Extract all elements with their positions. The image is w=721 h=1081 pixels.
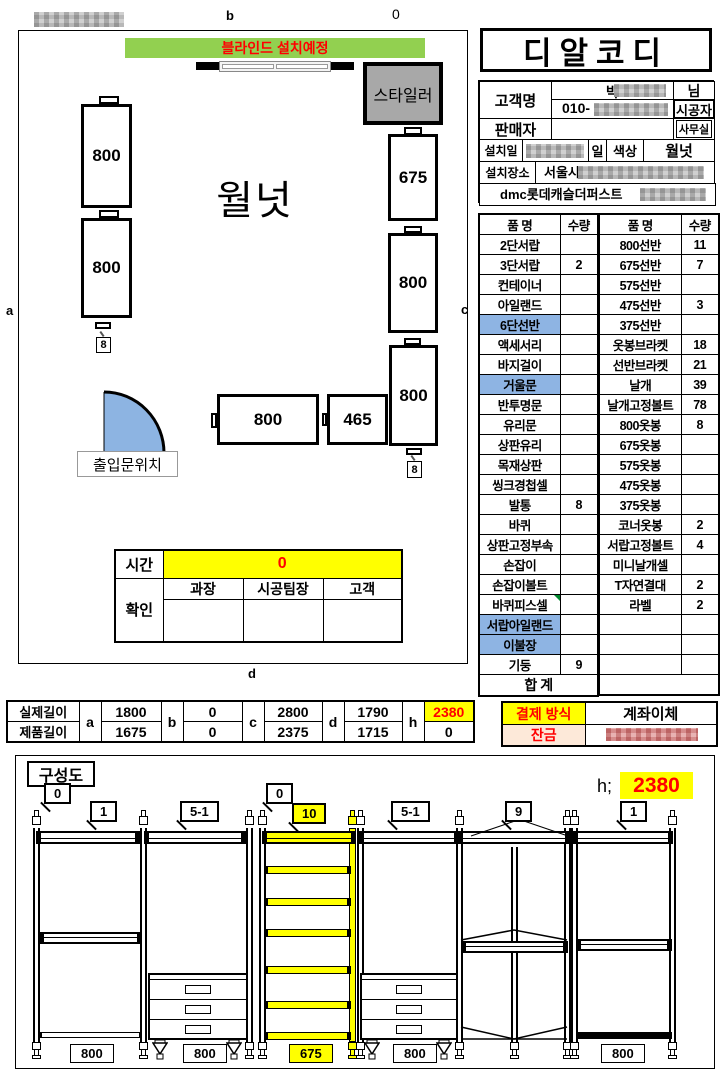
- frame-pole: [571, 828, 578, 1042]
- parts-name-header: 품 명: [479, 214, 560, 235]
- top-shelf: [144, 831, 246, 844]
- top-shelf: [36, 831, 140, 844]
- part-name: 375옷봉: [599, 495, 681, 515]
- length-d-actual: 1790: [344, 701, 402, 722]
- customer-suffix: 님: [673, 81, 715, 100]
- part-qty: [681, 615, 719, 635]
- time-label: 시간: [115, 550, 163, 578]
- hanging-rod: [576, 939, 672, 951]
- part-qty: [681, 655, 719, 675]
- top-shelf: [262, 831, 356, 844]
- parts-row: T자연결대 2: [599, 575, 719, 595]
- leveling-foot-top: [356, 816, 365, 825]
- part-name: 800옷봉: [599, 415, 681, 435]
- parts-row: 675옷봉: [599, 435, 719, 455]
- pole-count-marker-left: 8: [96, 337, 111, 353]
- parts-row: 미니날개셀: [599, 555, 719, 575]
- part-name: 575옷봉: [599, 455, 681, 475]
- parts-row: 유리문: [479, 415, 598, 435]
- top-shelf: [573, 831, 673, 844]
- parts-qty-header: 수량: [681, 214, 719, 235]
- unit-tab: [99, 96, 119, 104]
- leveling-foot-bottom: [245, 1055, 254, 1059]
- frame-pole: [669, 828, 676, 1042]
- site-detail: dmc롯데캐슬더퍼스트: [500, 187, 622, 202]
- length-d-product: 1715: [344, 722, 402, 743]
- part-qty: [560, 515, 598, 535]
- part-name: 목재상판: [479, 455, 560, 475]
- callout-5-1: 5-1: [180, 801, 219, 822]
- width-label-800: 800: [393, 1044, 437, 1063]
- length-key-a: a: [79, 701, 101, 742]
- part-qty: [560, 615, 598, 635]
- customer-info-table: 고객명 박 님 010- 시공자 판매자 사무실 설치일 일 색상 월넛 설치장…: [478, 80, 714, 203]
- leveling-foot-bottom: [510, 1055, 519, 1059]
- sign-cell: [323, 599, 402, 642]
- part-qty: [681, 275, 719, 295]
- height-value: 2380: [620, 772, 693, 799]
- parts-row: [599, 615, 719, 635]
- parts-row: 3단서랍 2: [479, 255, 598, 275]
- parts-row: 코너옷봉 2: [599, 515, 719, 535]
- drawer-handle: [185, 985, 211, 994]
- phone-prefix: 010-: [562, 100, 590, 116]
- drawer-handle: [185, 1025, 211, 1034]
- plan-unit-left-2: 800: [81, 218, 132, 318]
- parts-row: 거울문: [479, 375, 598, 395]
- leveling-foot-bottom: [668, 1055, 677, 1059]
- length-h-product: 0: [424, 722, 474, 743]
- plan-unit-right-1: 675: [388, 134, 438, 221]
- unit-tab: [404, 226, 422, 233]
- site-city: 서울시: [544, 165, 580, 180]
- parts-row: 옷봉브라켓 18: [599, 335, 719, 355]
- unit-tab: [404, 338, 421, 345]
- time-confirm-table: 시간 0 확인 과장 시공팀장 고객: [114, 549, 403, 643]
- part-name: 씽크경첩셀: [479, 475, 560, 495]
- signer-manager: 과장: [163, 578, 243, 599]
- payment-table: 결제 방식 계좌이체 잔금: [501, 701, 718, 747]
- parts-row: 발통 8: [479, 495, 598, 515]
- customer-phone: 010-: [551, 99, 674, 119]
- parts-row: 바퀴피스셀: [479, 595, 598, 615]
- parts-row: 씽크경첩셀: [479, 475, 598, 495]
- part-name: 발통: [479, 495, 560, 515]
- parts-table-right: 품 명 수량 800선반 11 675선반 7 575선반: [598, 213, 720, 696]
- parts-qty-header: 수량: [560, 214, 598, 235]
- parts-row: 바퀴: [479, 515, 598, 535]
- date-suffix: 일: [588, 139, 607, 162]
- part-name: 상판유리: [479, 435, 560, 455]
- callout-5-1: 5-1: [391, 801, 430, 822]
- hanging-rod: [39, 932, 142, 944]
- part-name: 375선반: [599, 315, 681, 335]
- part-name: 유리문: [479, 415, 560, 435]
- part-qty: 2: [681, 595, 719, 615]
- parts-row: 675선반 7: [599, 255, 719, 275]
- callout-0: 0: [44, 783, 71, 804]
- plan-unit-right-3: 800: [389, 345, 438, 446]
- part-name: 미니날개셀: [599, 555, 681, 575]
- leveling-foot-top: [139, 816, 148, 825]
- callout-9: 9: [505, 801, 532, 822]
- length-key-b: b: [161, 701, 183, 742]
- leveling-foot-bottom: [258, 1055, 267, 1059]
- part-name: 손잡이볼트: [479, 575, 560, 595]
- window-pane: [276, 64, 328, 69]
- parts-row: 375선반: [599, 315, 719, 335]
- length-c-actual: 2800: [264, 701, 322, 722]
- install-date-label: 설치일: [479, 139, 523, 162]
- part-name: 날개: [599, 375, 681, 395]
- parts-row: 아일랜드: [479, 295, 598, 315]
- site-detail-redacted: [640, 188, 706, 201]
- company-title: 디알코디: [480, 28, 712, 72]
- part-qty: [560, 455, 598, 475]
- part-name: 상판고정부속: [479, 535, 560, 555]
- customer-name-redacted: [614, 84, 666, 97]
- part-qty: [681, 455, 719, 475]
- part-qty: [560, 415, 598, 435]
- callout-10: 10: [292, 803, 326, 824]
- leveling-foot-top: [258, 816, 267, 825]
- parts-row: 475옷봉: [599, 475, 719, 495]
- part-name: 바퀴피스셀: [479, 595, 560, 615]
- part-qty: 21: [681, 355, 719, 375]
- parts-total-label: 합 계: [479, 675, 598, 697]
- parts-row: 575선반: [599, 275, 719, 295]
- parts-row: 6단선반: [479, 315, 598, 335]
- yellow-shelf: [264, 929, 351, 937]
- corner-shelf-bottom: [458, 1026, 570, 1042]
- drawer: [362, 1020, 456, 1039]
- corner-shelf-top: [458, 926, 570, 944]
- edge-label-a: a: [6, 303, 13, 318]
- part-qty: [560, 435, 598, 455]
- part-qty: [681, 315, 719, 335]
- part-name: 575선반: [599, 275, 681, 295]
- lengths-table: 실제길이 a 1800 b 0 c 2800 d 1790 h 2380 제품길…: [6, 700, 475, 743]
- part-name: 475선반: [599, 295, 681, 315]
- site-redacted: [578, 166, 704, 179]
- part-name: 컨테이너: [479, 275, 560, 295]
- parts-row: [599, 655, 719, 675]
- part-qty: 8: [681, 415, 719, 435]
- part-name: [599, 655, 681, 675]
- part-qty: 2: [560, 255, 598, 275]
- part-name: 이불장: [479, 635, 560, 655]
- part-name: 바퀴: [479, 515, 560, 535]
- part-name: 기둥: [479, 655, 560, 675]
- edge-label-b-value: 0: [392, 6, 400, 22]
- parts-row: 손잡이볼트: [479, 575, 598, 595]
- redacted-top-note: [34, 12, 124, 27]
- parts-row: 800옷봉 8: [599, 415, 719, 435]
- part-name: 6단선반: [479, 315, 560, 335]
- part-qty: 3: [681, 295, 719, 315]
- edge-label-c: c: [461, 302, 468, 317]
- width-label-800: 800: [70, 1044, 114, 1063]
- callout-1: 1: [90, 801, 117, 822]
- date-redacted: [526, 144, 584, 158]
- leveling-foot-bottom: [32, 1055, 41, 1059]
- parts-row: 상판고정부속: [479, 535, 598, 555]
- office-wrap: 사무실: [673, 118, 715, 140]
- part-qty: [681, 435, 719, 455]
- part-name: 3단서랍: [479, 255, 560, 275]
- plan-unit-mid-1: 800: [217, 394, 319, 445]
- customer-name: 박: [551, 81, 674, 100]
- width-label-800: 800: [601, 1044, 645, 1063]
- drawer-handle: [185, 1005, 211, 1014]
- triangle-foot: [152, 1040, 168, 1060]
- parts-row: 선반브라켓 21: [599, 355, 719, 375]
- seller-label: 판매자: [479, 118, 552, 140]
- part-name: 옷봉브라켓: [599, 335, 681, 355]
- window-pane: [222, 64, 274, 69]
- three-drawer-unit: [148, 973, 248, 1040]
- unit-tab: [406, 448, 422, 455]
- part-qty: [560, 635, 598, 655]
- seller-value: [551, 118, 674, 140]
- part-qty: [560, 315, 598, 335]
- phone-redacted: [594, 103, 668, 116]
- leveling-foot-top: [668, 816, 677, 825]
- part-name: 액세서리: [479, 335, 560, 355]
- drawer: [150, 1020, 246, 1039]
- part-name: 손잡이: [479, 555, 560, 575]
- length-b-actual: 0: [183, 701, 242, 722]
- triangle-foot: [226, 1040, 242, 1060]
- part-name: 바지걸이: [479, 355, 560, 375]
- part-name: [599, 615, 681, 635]
- part-qty: 18: [681, 335, 719, 355]
- part-qty: 8: [560, 495, 598, 515]
- balance-redacted: [606, 728, 698, 741]
- length-c-product: 2375: [264, 722, 322, 743]
- parts-row: 서랍고정볼트 4: [599, 535, 719, 555]
- part-qty: 9: [560, 655, 598, 675]
- three-drawer-unit: [360, 973, 458, 1040]
- edge-label-b: b: [226, 8, 234, 23]
- drawer-handle: [396, 1005, 422, 1014]
- site-label: 설치장소: [479, 161, 536, 184]
- part-name: T자연결대: [599, 575, 681, 595]
- edge-label-d: d: [248, 666, 256, 681]
- parts-row: 서랍아일랜드: [479, 615, 598, 635]
- customer-label: 고객명: [479, 81, 552, 119]
- parts-row: 반투명문: [479, 395, 598, 415]
- window-wall-left: [196, 62, 219, 70]
- unit-tab: [99, 210, 119, 218]
- part-name: [599, 635, 681, 655]
- parts-row: 이불장: [479, 635, 598, 655]
- yellow-shelf: [264, 966, 351, 974]
- plan-unit-right-2: 800: [388, 233, 438, 333]
- part-qty: [560, 575, 598, 595]
- blind-banner: 블라인드 설치예정: [125, 38, 425, 58]
- part-qty: [560, 335, 598, 355]
- unit-tab: [95, 322, 111, 329]
- drawer: [362, 980, 456, 1000]
- length-a-product: 1675: [101, 722, 161, 743]
- payment-method-value: 계좌이체: [585, 702, 717, 725]
- yellow-shelf: [264, 1001, 351, 1009]
- width-label-675: 675: [289, 1044, 333, 1063]
- bottom-shelf: [39, 1032, 142, 1038]
- site-value: 서울시: [535, 161, 715, 184]
- signer-team-lead: 시공팀장: [243, 578, 323, 599]
- part-name: 선반브라켓: [599, 355, 681, 375]
- confirm-label: 확인: [115, 578, 163, 642]
- part-name: 475옷봉: [599, 475, 681, 495]
- part-name: 거울문: [479, 375, 560, 395]
- time-value: 0: [163, 550, 402, 578]
- parts-row: 800선반 11: [599, 235, 719, 255]
- leveling-foot-bottom: [570, 1055, 579, 1059]
- leveling-foot-top: [32, 816, 41, 825]
- order-sheet: b 0 a c d 블라인드 설치예정 스타일러 800 800 8 월넛 67…: [0, 0, 721, 1081]
- part-qty: [681, 555, 719, 575]
- parts-row: 컨테이너: [479, 275, 598, 295]
- part-qty: [681, 475, 719, 495]
- part-qty: [560, 295, 598, 315]
- callout-1: 1: [620, 801, 647, 822]
- leveling-foot-top: [245, 816, 254, 825]
- part-qty: [560, 355, 598, 375]
- signer-customer: 고객: [323, 578, 402, 599]
- parts-row: 목재상판: [479, 455, 598, 475]
- part-name: 서랍아일랜드: [479, 615, 560, 635]
- height-prefix: h;: [597, 776, 612, 797]
- part-name: 라벨: [599, 595, 681, 615]
- length-key-h: h: [402, 701, 424, 742]
- parts-row: 375옷봉: [599, 495, 719, 515]
- parts-row: 2단서랍: [479, 235, 598, 255]
- office-cell: 사무실: [676, 120, 712, 138]
- parts-row: 날개고정볼트 78: [599, 395, 719, 415]
- length-key-d: d: [322, 701, 344, 742]
- parts-row: 라벨 2: [599, 595, 719, 615]
- part-qty: 78: [681, 395, 719, 415]
- pole-count-marker-right: 8: [407, 461, 422, 478]
- parts-right-footer: [599, 675, 719, 696]
- balance-value: [585, 725, 717, 747]
- part-qty: [560, 375, 598, 395]
- yellow-shelf: [264, 1032, 351, 1040]
- payment-method-label: 결제 방식: [502, 702, 585, 725]
- length-h-actual: 2380: [424, 701, 474, 722]
- length-b-product: 0: [183, 722, 242, 743]
- yellow-shelf: [264, 866, 351, 874]
- part-name: 675옷봉: [599, 435, 681, 455]
- drawer: [362, 1000, 456, 1020]
- balance-label: 잔금: [502, 725, 585, 747]
- sign-cell: [163, 599, 243, 642]
- parts-row: 날개 39: [599, 375, 719, 395]
- styler-box: 스타일러: [363, 62, 443, 125]
- drawer-handle: [396, 985, 422, 994]
- leveling-foot-bottom: [455, 1055, 464, 1059]
- part-qty: 39: [681, 375, 719, 395]
- parts-row: 575옷봉: [599, 455, 719, 475]
- window-wall-right: [331, 62, 354, 70]
- color-label: 색상: [606, 139, 644, 162]
- part-name: 서랍고정볼트: [599, 535, 681, 555]
- callout-0: 0: [266, 783, 293, 804]
- part-qty: 7: [681, 255, 719, 275]
- parts-row: [599, 635, 719, 655]
- site-detail-row: dmc롯데캐슬더퍼스트: [479, 183, 716, 206]
- door-swing-arc: [98, 387, 170, 459]
- part-qty: 2: [681, 575, 719, 595]
- part-name: 800선반: [599, 235, 681, 255]
- window-frame: [219, 61, 331, 72]
- part-qty: [560, 535, 598, 555]
- part-name: 2단서랍: [479, 235, 560, 255]
- part-qty: [560, 395, 598, 415]
- part-qty: [560, 555, 598, 575]
- length-a-actual: 1800: [101, 701, 161, 722]
- part-name: 675선반: [599, 255, 681, 275]
- part-qty: 4: [681, 535, 719, 555]
- part-qty: [560, 235, 598, 255]
- parts-row: 기둥 9: [479, 655, 598, 675]
- color-value: 월넛: [643, 139, 715, 162]
- door-label: 출입문위치: [77, 451, 178, 477]
- parts-row: 손잡이: [479, 555, 598, 575]
- part-qty: [560, 595, 598, 615]
- parts-row: 상판유리: [479, 435, 598, 455]
- triangle-foot: [364, 1040, 380, 1060]
- yellow-shelf: [264, 898, 351, 906]
- sign-cell: [243, 599, 323, 642]
- bottom-shelf-solid: [576, 1032, 672, 1039]
- drawer-handle: [396, 1025, 422, 1034]
- part-qty: [560, 275, 598, 295]
- part-qty: 11: [681, 235, 719, 255]
- parts-row: 액세서리: [479, 335, 598, 355]
- part-qty: 2: [681, 515, 719, 535]
- triangle-foot: [436, 1040, 452, 1060]
- top-shelf: [359, 831, 459, 844]
- installer-cell: 시공자: [673, 99, 715, 119]
- part-name: 코너옷봉: [599, 515, 681, 535]
- drawer: [150, 980, 246, 1000]
- part-qty: [681, 495, 719, 515]
- actual-length-label: 실제길이: [7, 701, 79, 722]
- parts-row: 바지걸이: [479, 355, 598, 375]
- leveling-foot-bottom: [139, 1055, 148, 1059]
- drawer: [150, 1000, 246, 1020]
- install-date-value: [522, 139, 589, 162]
- plan-unit-left-1: 800: [81, 104, 132, 208]
- plan-unit-mid-2: 465: [327, 394, 388, 445]
- parts-name-header: 품 명: [599, 214, 681, 235]
- parts-row: 475선반 3: [599, 295, 719, 315]
- room-finish-label: 월넛: [155, 168, 355, 226]
- part-name: 날개고정볼트: [599, 395, 681, 415]
- part-name: 반투명문: [479, 395, 560, 415]
- width-label-800: 800: [183, 1044, 227, 1063]
- part-qty: [681, 635, 719, 655]
- product-length-label: 제품길이: [7, 722, 79, 743]
- parts-table-left: 품 명 수량 2단서랍 3단서랍 2 컨테이너: [478, 213, 599, 697]
- part-name: 아일랜드: [479, 295, 560, 315]
- part-qty: [560, 475, 598, 495]
- length-key-c: c: [242, 701, 264, 742]
